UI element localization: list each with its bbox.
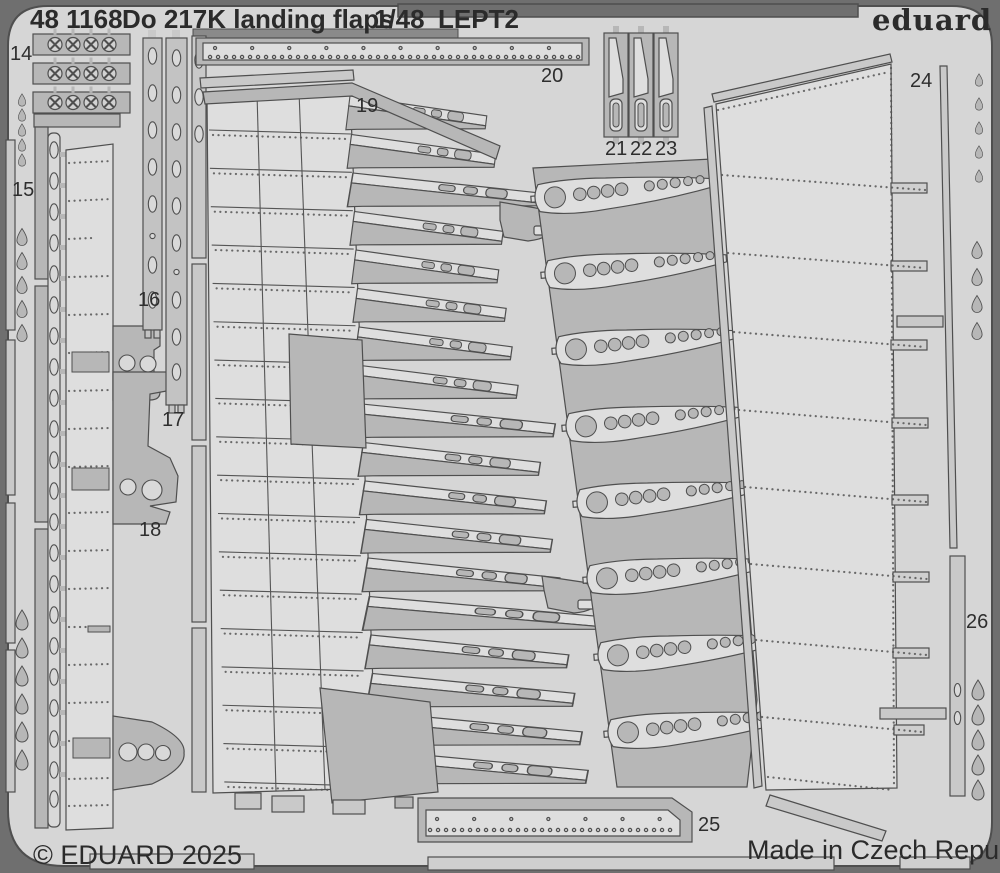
parts-21-23-blades (604, 26, 678, 144)
label-part-19: 19 (356, 95, 378, 117)
label-part-24: 24 (910, 70, 932, 92)
part-15-flap-rail-and-skin (35, 127, 113, 830)
sheet-header: 48 1168 Do 217K landing flaps 1/48 LEPT2 (30, 4, 519, 34)
label-part-17: 17 (162, 409, 184, 431)
label-part-20: 20 (541, 65, 563, 87)
fret-canvas: 48 1168 Do 217K landing flaps 1/48 LEPT2… (0, 0, 1000, 873)
part-26-strip (950, 556, 965, 796)
label-part-18: 18 (139, 519, 161, 541)
label-part-23: 23 (655, 138, 677, 160)
label-part-25: 25 (698, 814, 720, 836)
photo-etch-sheet: 48 1168 Do 217K landing flaps 1/48 LEPT2… (0, 0, 1000, 873)
label-part-15: 15 (12, 179, 34, 201)
brand-logo: eduard (872, 3, 992, 37)
copyright-text: © EDUARD 2025 (33, 840, 242, 870)
part-20-rivet-strip (196, 38, 589, 65)
sheet-code: LEPT2 (438, 4, 519, 34)
part-14-hinge-plates (33, 29, 130, 128)
label-part-22: 22 (630, 138, 652, 160)
label-part-14: 14 (10, 43, 32, 65)
sheet-title: Do 217K landing flaps (122, 4, 394, 34)
label-part-21: 21 (605, 138, 627, 160)
label-part-16: 16 (138, 289, 160, 311)
part-25-rivet-strip (395, 797, 692, 842)
sheet-scale: 1/48 (374, 4, 425, 34)
spar-strips (192, 36, 206, 792)
left-edge-rail (6, 140, 15, 792)
part-17-spar-strip (166, 30, 187, 413)
part-19-dark-panel (289, 334, 366, 448)
made-in-text: Made in Czech Republic (747, 835, 1000, 865)
label-part-26: 26 (966, 611, 988, 633)
